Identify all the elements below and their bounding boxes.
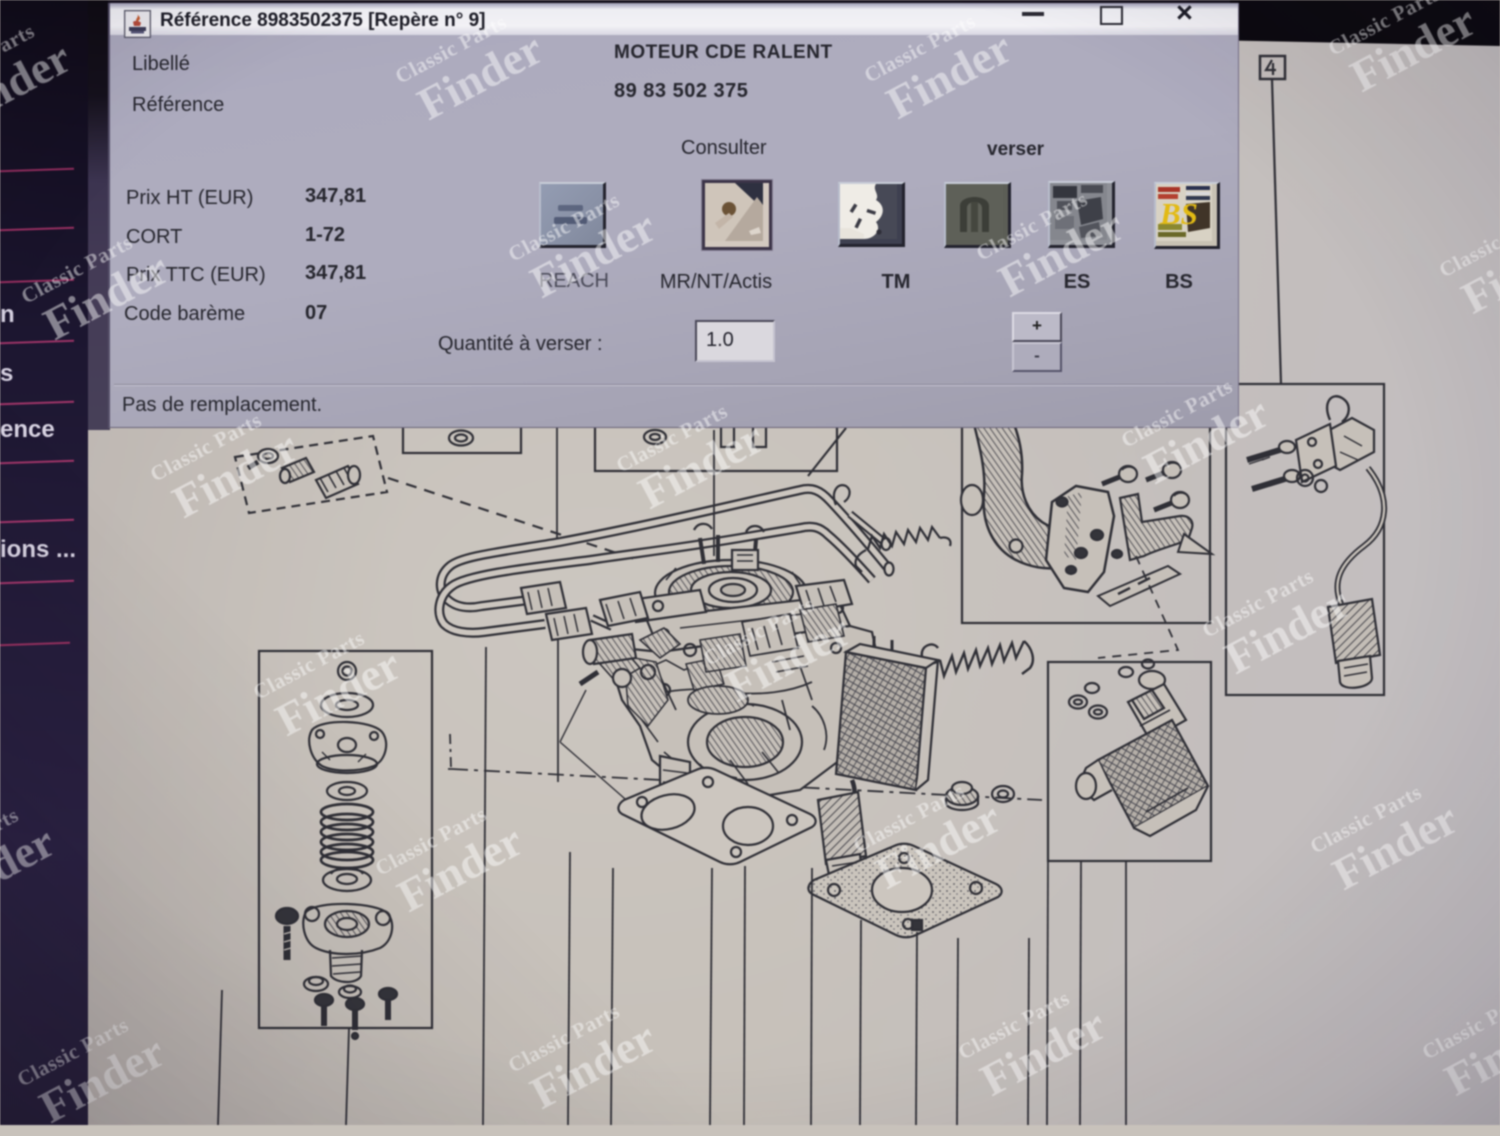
svg-text:BS: BS [1159, 196, 1198, 231]
